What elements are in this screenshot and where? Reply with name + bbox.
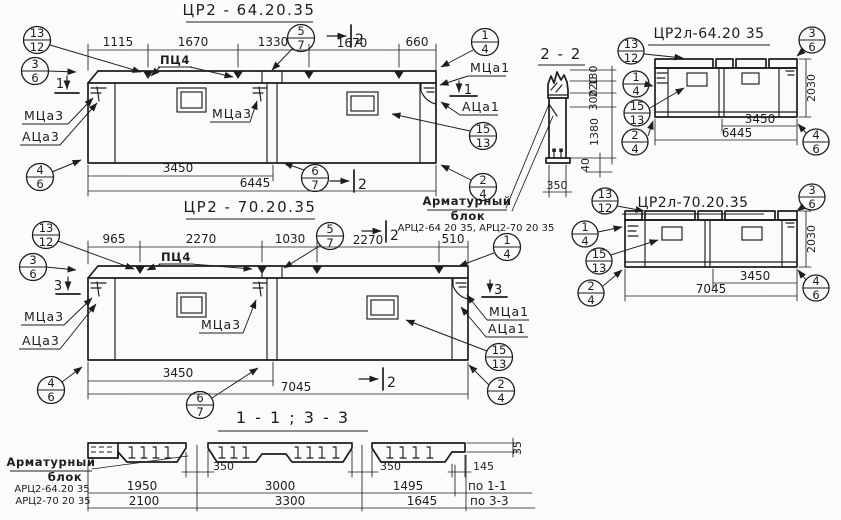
svg-text:4: 4 [587, 293, 594, 307]
marker-15-13: 1513 [470, 122, 497, 150]
cut-mark-3-left: 3 [54, 277, 80, 294]
cut-mark-1-right: 1 [450, 81, 477, 98]
svg-text:3: 3 [808, 26, 815, 40]
marker-3-6: 36 [20, 253, 47, 281]
marker-4-6: 46 [803, 128, 829, 156]
dim-6445: 6445 [240, 176, 271, 190]
marker-leaders [48, 45, 473, 180]
panel-outline [625, 211, 797, 267]
svg-text:3: 3 [808, 183, 815, 197]
dim-35: 35 [511, 441, 524, 455]
marker-6-7: 67 [187, 391, 214, 419]
cut-mark-1-left: 1 [55, 76, 79, 93]
svg-text:12: 12 [624, 51, 639, 65]
svg-text:12: 12 [39, 235, 54, 249]
panel-openings [177, 293, 398, 319]
svg-text:6: 6 [311, 164, 318, 178]
mca3-left-leader [68, 98, 93, 124]
svg-text:2: 2 [497, 377, 504, 391]
marker-13-12: 1312 [24, 26, 51, 54]
marker-4-6: 46 [803, 274, 829, 302]
svg-text:3: 3 [31, 57, 38, 71]
label-mca1: МЦа1 [470, 60, 510, 75]
dim-1950: 1950 [127, 479, 158, 493]
svg-text:2: 2 [587, 279, 594, 293]
cap-notch-marks [143, 71, 404, 79]
svg-text:15: 15 [492, 343, 507, 357]
marker-4-6: 46 [27, 163, 54, 191]
svg-text:6: 6 [812, 142, 819, 156]
dim-1380: 1380 [588, 118, 601, 146]
svg-text:4: 4 [47, 376, 54, 390]
mca3-mid-leader [243, 300, 256, 333]
svg-text:1: 1 [56, 77, 64, 92]
label-mca3-left: МЦа3 [24, 309, 64, 324]
view-rear-64: ЦР2л-64.20 35 3450 6445 2030 1312 14 151… [618, 26, 829, 156]
dim-1645: 1645 [407, 494, 438, 508]
dim-3300: 3300 [275, 494, 306, 508]
svg-text:7: 7 [311, 178, 318, 192]
svg-text:6: 6 [36, 177, 43, 191]
dim-extension-lines [88, 241, 468, 399]
svg-text:6: 6 [808, 197, 815, 211]
view4-title: ЦР2л-70.20.35 [637, 195, 748, 211]
svg-text:4: 4 [812, 128, 819, 142]
dim-6445: 6445 [722, 126, 753, 140]
dim-3450: 3450 [745, 112, 776, 126]
dim-2270b: 2270 [353, 233, 384, 247]
dim-350: 350 [547, 179, 568, 192]
dim-3450: 3450 [163, 366, 194, 380]
label-mca3-left: МЦа3 [24, 108, 64, 123]
cut-mark-2-bottom: 2 [359, 368, 396, 391]
marker-2-4: 24 [578, 279, 604, 307]
pc4-leader-1 [147, 264, 161, 270]
section22-profile [546, 72, 570, 163]
marker-15-13: 1513 [486, 343, 513, 371]
dim-3000: 3000 [265, 479, 296, 493]
mca1-leader [467, 295, 487, 320]
dim-ticks [84, 46, 440, 195]
svg-text:13: 13 [476, 136, 491, 150]
dim-965: 965 [103, 232, 126, 246]
svg-text:15: 15 [592, 247, 607, 261]
aca1-leader [441, 102, 460, 115]
svg-text:12: 12 [30, 40, 45, 54]
marker-1-4: 14 [572, 220, 598, 248]
svg-text:1: 1 [503, 233, 510, 247]
note-line3: АРЦ2-64.20 35 [14, 484, 89, 495]
svg-text:12: 12 [598, 201, 613, 215]
dim-gap1-350: 350 [213, 460, 234, 473]
note-line3: АРЦ2-64 20 35, АРЦ2-70 20 35 [398, 223, 555, 234]
dim-gap2-350: 350 [380, 460, 401, 473]
label-mca3-mid: МЦа3 [201, 317, 241, 332]
note-line1: Арматурный [422, 194, 511, 208]
note-line4: АРЦ2-70 20 35 [15, 496, 90, 507]
label-po-1-1: по 1-1 [468, 479, 507, 493]
marker-1-4: 14 [623, 70, 649, 98]
svg-text:2: 2 [358, 177, 367, 193]
svg-text:7: 7 [297, 38, 304, 52]
dim-145: 145 [473, 460, 494, 473]
label-aca3-left: АЦа3 [22, 129, 60, 144]
marker-4-6: 46 [38, 376, 65, 404]
dim-extension-lines [88, 44, 436, 196]
dim-40: 40 [579, 158, 592, 172]
svg-text:1: 1 [481, 28, 488, 42]
dim-1330: 1330 [258, 35, 289, 49]
armature-block-dashed [91, 447, 114, 452]
label-mca1: МЦа1 [489, 304, 529, 319]
svg-text:6: 6 [196, 391, 203, 405]
panel-details [91, 71, 436, 163]
blueprint-canvas: ЦР2 - 64.20.35 1115 1670 [0, 0, 841, 520]
marker-13-12: 1312 [618, 37, 644, 65]
dim-2100: 2100 [129, 494, 160, 508]
dim-1030: 1030 [275, 232, 306, 246]
section1133-title: 1 - 1 ; 3 - 3 [236, 408, 350, 427]
dim-3450: 3450 [163, 161, 194, 175]
marker-6-7: 67 [302, 164, 329, 192]
svg-text:6: 6 [808, 40, 815, 54]
anchor-dots [552, 149, 563, 153]
dim-300: 300 [587, 90, 600, 111]
dim-1115: 1115 [103, 35, 134, 49]
panel-details [625, 220, 797, 267]
svg-text:13: 13 [30, 26, 45, 40]
label-aca1: АЦа1 [488, 321, 526, 336]
svg-text:4: 4 [631, 142, 638, 156]
note-line2: блок [48, 470, 83, 484]
svg-text:15: 15 [476, 122, 491, 136]
svg-text:7: 7 [326, 236, 333, 250]
label-mca3-mid: МЦа3 [212, 106, 252, 121]
marker-15-13: 1513 [586, 247, 612, 275]
label-po-3-3: по 3-3 [470, 494, 509, 508]
view2-title: ЦР2 - 70.20.35 [184, 198, 317, 216]
dim-7045: 7045 [281, 380, 312, 394]
svg-text:4: 4 [36, 163, 43, 177]
svg-text:6: 6 [47, 390, 54, 404]
svg-text:2: 2 [631, 128, 638, 142]
marker-2-4: 24 [488, 377, 515, 405]
cap-notch-marks [135, 266, 444, 274]
label-aca3-left: АЦа3 [22, 333, 60, 348]
svg-text:6: 6 [31, 71, 38, 85]
svg-text:3: 3 [54, 279, 62, 294]
view3-title: ЦР2л-64.20 35 [653, 26, 764, 42]
panel-details [91, 266, 468, 360]
pc4-leader-2 [190, 67, 233, 77]
dim-510: 510 [442, 232, 465, 246]
label-pc4: ПЦ4 [160, 53, 190, 67]
view-rear-70: ЦР2л-70.20.35 3450 7045 2030 1312 14 151… [572, 183, 829, 307]
view1-title: ЦР2 - 64.20.35 [183, 1, 316, 19]
svg-text:6: 6 [812, 288, 819, 302]
svg-text:2: 2 [355, 32, 364, 48]
svg-text:6: 6 [29, 267, 36, 281]
svg-text:4: 4 [503, 247, 510, 261]
svg-text:2: 2 [387, 375, 396, 391]
svg-text:13: 13 [630, 113, 645, 127]
marker-3-6: 36 [799, 26, 825, 54]
aca3-left-leader [60, 304, 96, 349]
marker-5-7: 57 [288, 24, 315, 52]
svg-text:4: 4 [481, 42, 488, 56]
marker-1-4: 14 [472, 28, 499, 56]
section-1-1-3-3: 1 - 1 ; 3 - 3 350 350 145 [84, 408, 535, 512]
view-front-64: ЦР2 - 64.20.35 1115 1670 [20, 1, 510, 201]
svg-text:15: 15 [630, 99, 645, 113]
dim-7045: 7045 [696, 282, 727, 296]
note-line2: блок [451, 209, 486, 223]
svg-text:3: 3 [29, 253, 36, 267]
svg-text:2: 2 [479, 173, 486, 187]
marker-2-4: 24 [622, 128, 648, 156]
dim-3450: 3450 [740, 269, 771, 283]
marker-15-13: 1513 [624, 99, 650, 127]
svg-text:4: 4 [581, 234, 588, 248]
section22-ticks [545, 66, 616, 196]
svg-text:5: 5 [297, 24, 304, 38]
svg-text:13: 13 [624, 37, 639, 51]
panel-outline [88, 266, 468, 360]
svg-text:13: 13 [39, 221, 54, 235]
section22-dims-lines [543, 66, 616, 197]
note-line1: Арматурный [6, 455, 95, 469]
dim-1670a: 1670 [178, 35, 209, 49]
svg-text:13: 13 [592, 261, 607, 275]
panel-outline [88, 71, 436, 163]
aca1-leader [461, 307, 486, 337]
svg-text:4: 4 [632, 84, 639, 98]
svg-text:4: 4 [812, 274, 819, 288]
svg-text:3: 3 [494, 283, 502, 298]
label-pc4: ПЦ4 [161, 250, 191, 264]
marker-leaders [46, 241, 494, 398]
svg-text:1: 1 [581, 220, 588, 234]
rebar-marks [129, 447, 433, 458]
dim-660: 660 [406, 35, 429, 49]
dim-2270a: 2270 [186, 232, 217, 246]
cut-mark-3-right: 3 [482, 280, 507, 298]
svg-text:13: 13 [598, 187, 613, 201]
svg-text:7: 7 [196, 405, 203, 419]
marker-1-4: 14 [494, 233, 521, 261]
marker-13-12: 1312 [592, 187, 618, 215]
note-armature-block: Арматурный блок АРЦ2-64 20 35, АРЦ2-70 2… [398, 194, 555, 234]
svg-text:5: 5 [326, 222, 333, 236]
dim-2030: 2030 [805, 225, 818, 253]
cut-mark-2-bottom: 2 [330, 170, 367, 193]
svg-text:1: 1 [632, 70, 639, 84]
svg-text:4: 4 [497, 391, 504, 405]
dim-2030: 2030 [805, 74, 818, 102]
marker-3-6: 36 [22, 57, 49, 85]
dim-1495: 1495 [393, 479, 424, 493]
drawing-sheet: ЦР2 - 64.20.35 1115 1670 [0, 0, 841, 520]
marker-13-12: 1312 [33, 221, 60, 249]
section22-title: 2 - 2 [540, 45, 582, 63]
label-aca1: АЦа1 [462, 99, 500, 114]
svg-text:13: 13 [492, 357, 507, 371]
panel-outline [655, 59, 797, 117]
